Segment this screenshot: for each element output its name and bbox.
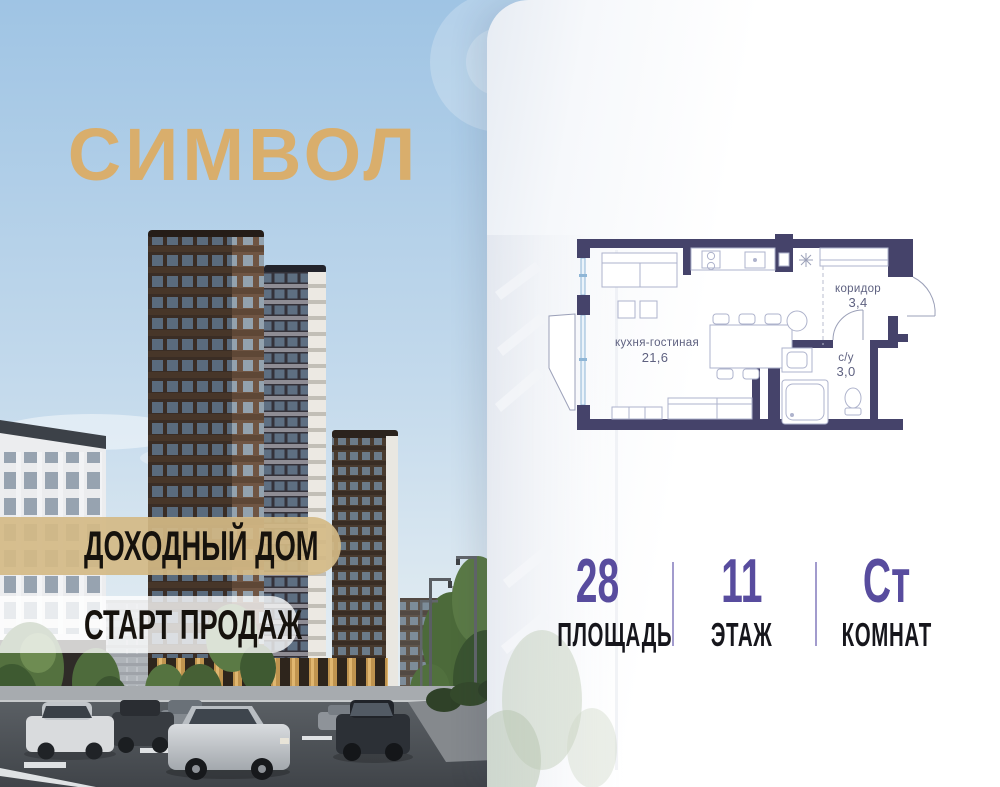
shaft <box>779 253 789 266</box>
windows <box>579 258 587 405</box>
building-photo: СИМВОЛ ДОХОДНЫЙ ДОМ СТАРТ ПРОДАЖ <box>0 0 540 787</box>
logo-simvol: СИМВОЛ <box>0 118 487 192</box>
entry-door <box>907 277 935 316</box>
stat-rooms: Ст КОМНАТ <box>812 550 962 651</box>
snowflake-icon <box>799 253 813 267</box>
stat-area-label: ПЛОЩАДЬ <box>522 618 672 651</box>
room-bathroom-area: 3,0 <box>837 364 856 379</box>
banner-dohodny-dom: ДОХОДНЫЙ ДОМ <box>0 517 341 575</box>
balcony <box>549 314 575 410</box>
stat-rooms-label: КОМНАТ <box>812 618 962 651</box>
room-corridor-label: коридор <box>835 283 881 295</box>
banner-secondary-label: СТАРТ ПРОДАЖ <box>84 604 302 646</box>
banner-primary-label: ДОХОДНЫЙ ДОМ <box>84 525 319 567</box>
promo-card: СИМВОЛ ДОХОДНЫЙ ДОМ СТАРТ ПРОДАЖ <box>0 0 1000 787</box>
room-kitchen-label: кухня-гостиная <box>615 337 699 349</box>
stat-area-value: 28 <box>575 550 618 613</box>
stat-area: 28 ПЛОЩАДЬ <box>522 550 672 651</box>
info-panel: кухня-гостиная 21,6 коридор 3,4 с/у 3,0 … <box>487 0 1000 787</box>
room-corridor-area: 3,4 <box>849 295 868 310</box>
furniture <box>602 248 888 424</box>
stat-floor-value: 11 <box>721 550 762 613</box>
room-kitchen-area: 21,6 <box>642 350 669 365</box>
room-bathroom-label: с/у <box>838 352 854 364</box>
bathroom-door <box>833 310 863 340</box>
banner-start-prodazh: СТАРТ ПРОДАЖ <box>0 596 298 653</box>
floor-plan: кухня-гостиная 21,6 коридор 3,4 с/у 3,0 <box>545 222 945 437</box>
stat-floor: 11 ЭТАЖ <box>667 550 817 651</box>
stat-floor-label: ЭТАЖ <box>667 618 817 651</box>
stat-rooms-value: Ст <box>863 550 910 613</box>
